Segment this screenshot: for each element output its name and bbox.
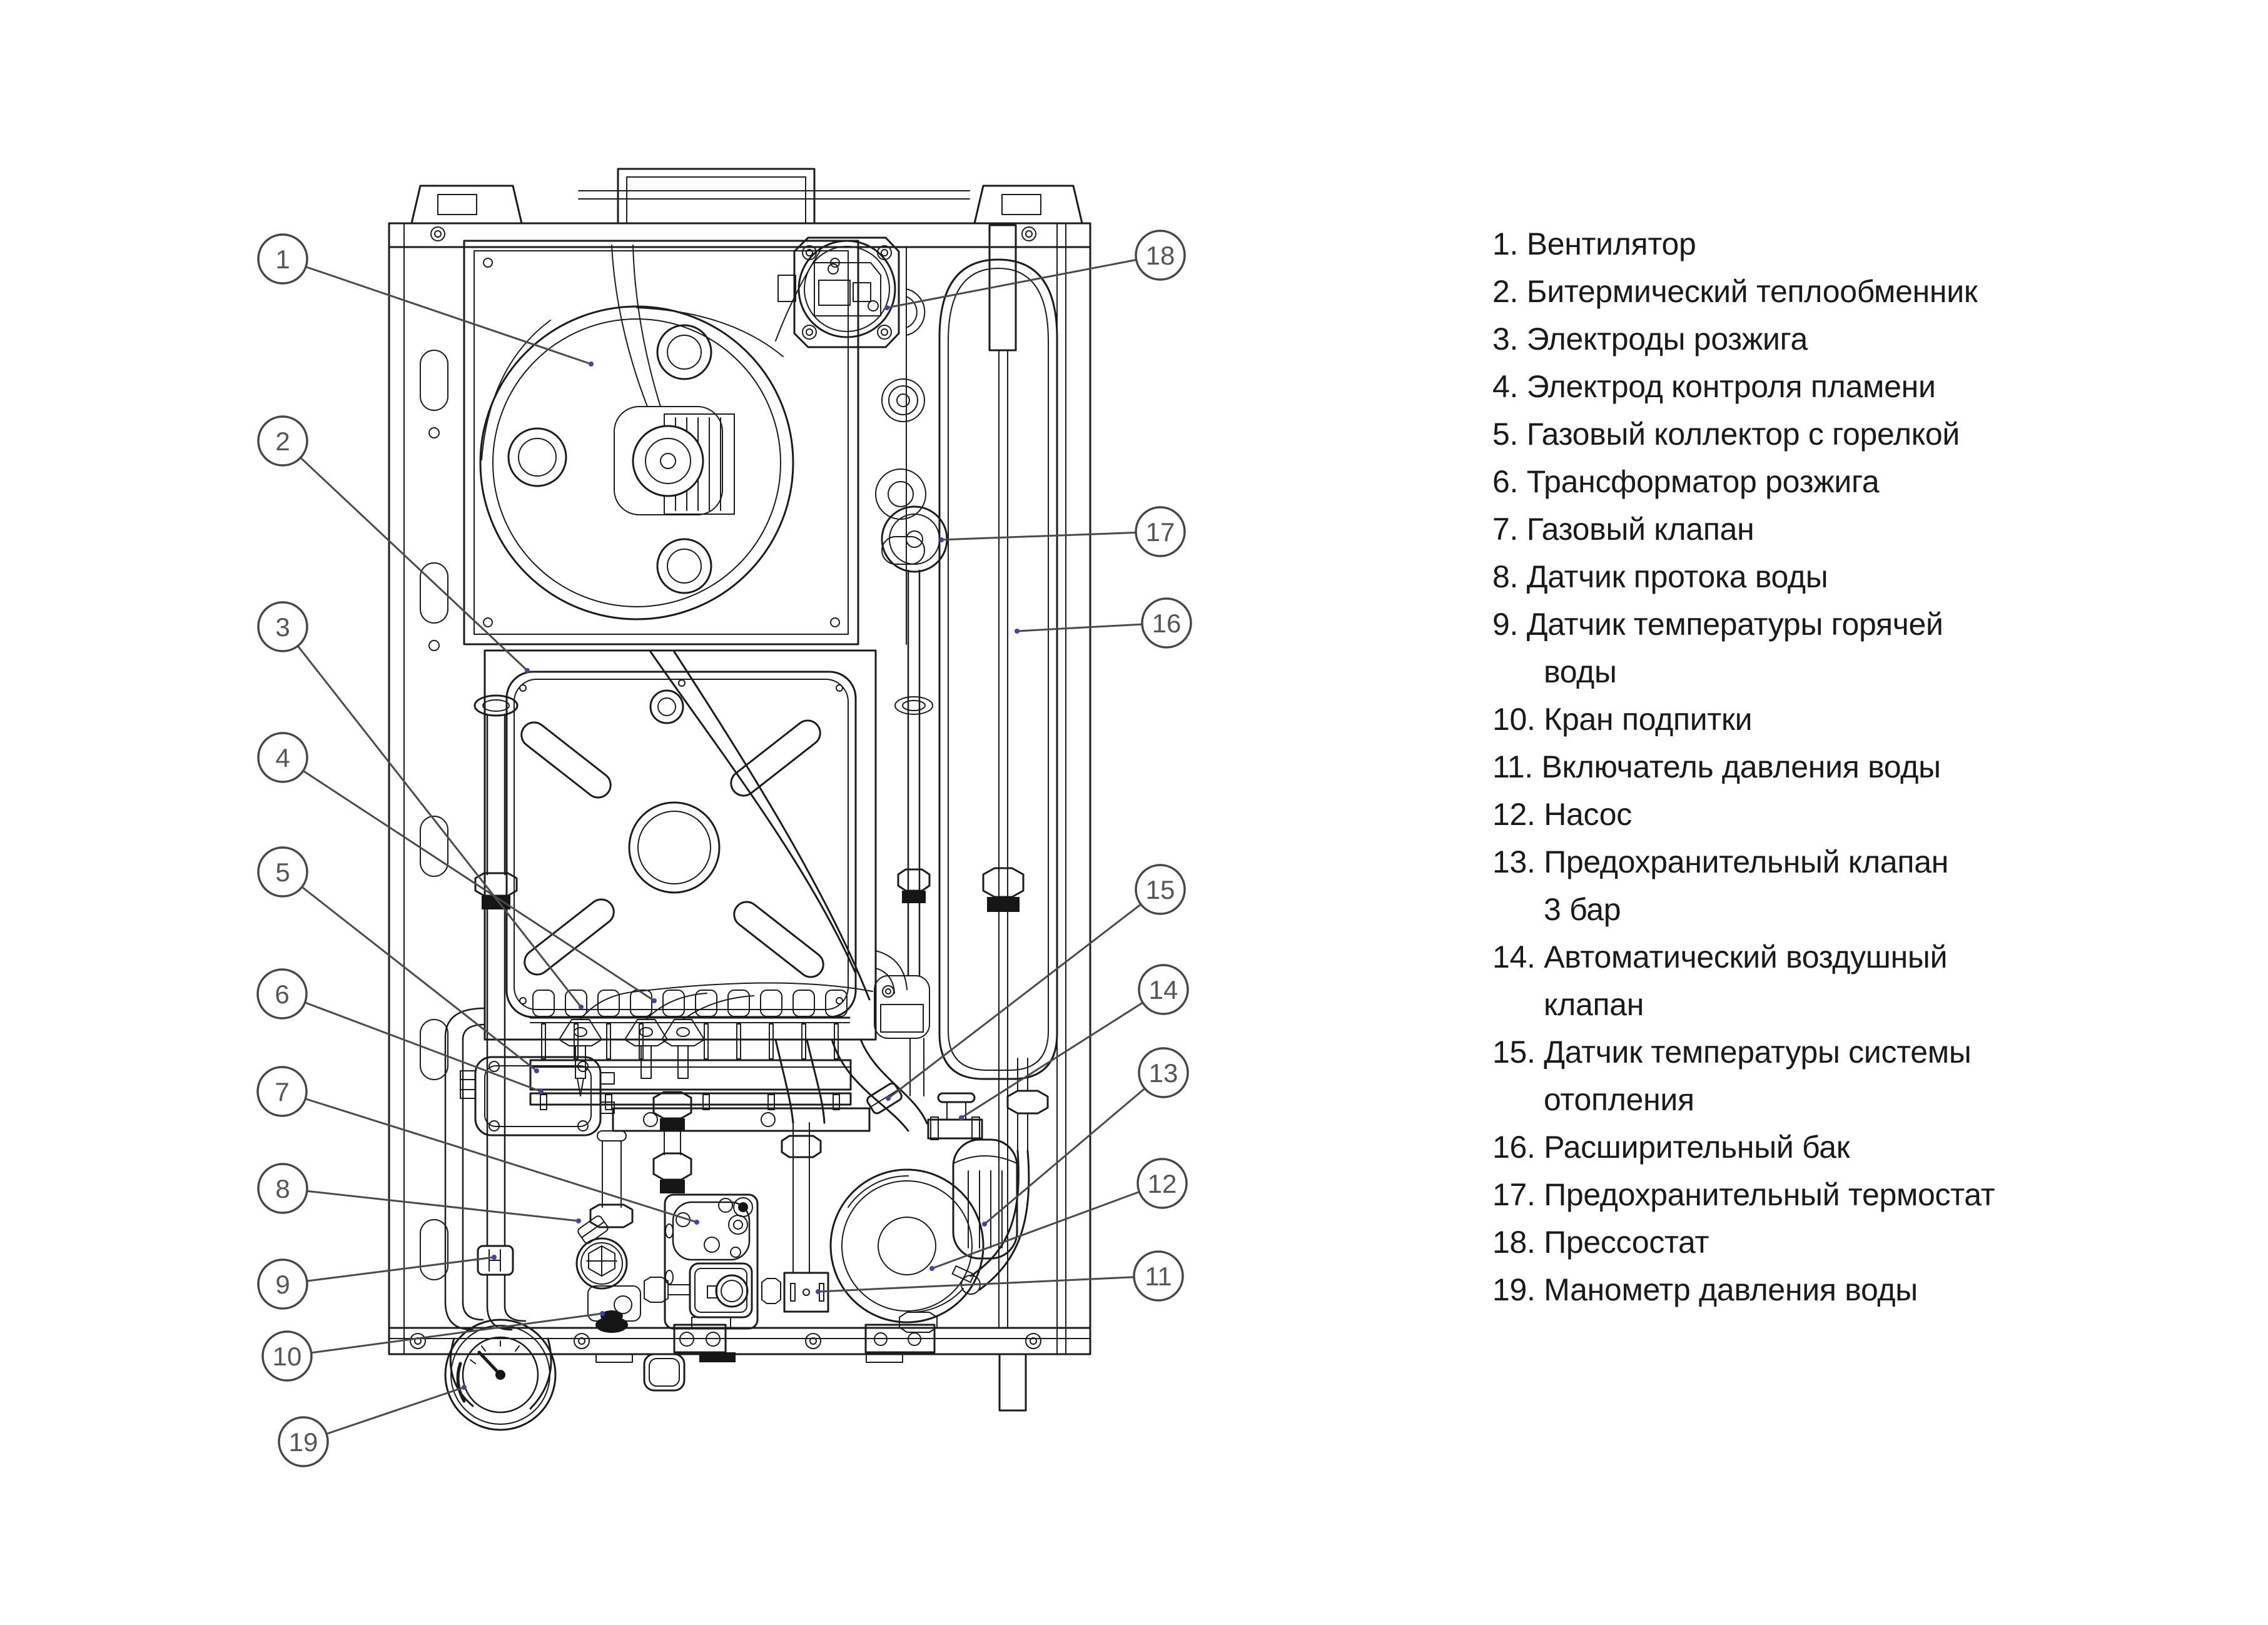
callout-10: 10 [263,1311,605,1380]
legend-item-11: 11. Включатель давления воды [1492,743,2243,791]
callout-number-7: 7 [275,1077,289,1106]
legend-item-18: 18. Прессостат [1492,1218,2243,1266]
callout-leader-18 [887,255,1160,308]
callout-number-19: 19 [289,1427,318,1457]
callout-16: 16 [1015,599,1191,647]
callout-4: 4 [258,733,657,1003]
callout-target-dot-13 [982,1222,987,1227]
callout-target-dot-18 [884,305,889,310]
callout-target-dot-10 [600,1311,605,1316]
callout-number-6: 6 [275,980,289,1009]
callout-number-13: 13 [1149,1058,1178,1088]
callout-number-18: 18 [1146,241,1175,270]
callout-number-8: 8 [275,1174,290,1203]
callout-target-dot-19 [462,1385,467,1390]
callout-9: 9 [258,1255,497,1309]
callout-target-dot-4 [652,998,657,1003]
callout-leader-7 [282,1091,697,1222]
legend-item-6: 6. Трансформатор розжига [1492,458,2243,505]
cabinet-frame [389,169,1090,1354]
legend-item-3: 3. Электроды розжига [1492,315,2243,363]
callout-number-1: 1 [275,245,290,274]
callout-target-dot-16 [1015,629,1020,634]
legend-item-2: 2. Битермический теплообменник [1492,268,2243,315]
water-pressure-switch [762,1123,828,1312]
callout-number-5: 5 [275,858,290,887]
callouts-layer: 12345678910191817161514131211 [258,231,1191,1466]
expansion-tank [939,225,1057,1410]
callout-number-9: 9 [275,1270,290,1299]
callout-number-16: 16 [1152,609,1182,638]
legend-item-8: 8. Датчик протока воды [1492,553,2243,600]
gas-valve [654,1092,757,1329]
callout-target-dot-15 [886,1096,891,1101]
callout-target-dot-3 [579,1005,584,1010]
legend-item-15: 15. Датчик температуры системы [1492,1028,2243,1076]
callout-leader-3 [283,627,581,1007]
callout-target-dot-2 [525,668,530,673]
callout-1: 1 [258,235,594,367]
callout-number-15: 15 [1146,875,1175,904]
pump [831,1093,1017,1332]
boiler-line-art [389,169,1090,1430]
bottom-rail [410,1325,1041,1362]
callout-number-3: 3 [275,612,290,642]
legend-item-14-cont: клапан [1492,981,2243,1028]
callout-leader-4 [283,757,654,1001]
callout-target-dot-12 [929,1266,934,1271]
callout-5: 5 [258,848,539,1073]
callout-target-dot-8 [576,1218,581,1223]
callout-3: 3 [258,602,584,1010]
legend-item-19: 19. Манометр давления воды [1492,1266,2243,1314]
legend-item-1: 1. Вентилятор [1492,220,2243,268]
legend-item-9-cont: воды [1492,648,2243,696]
callout-leader-17 [941,532,1160,540]
legend-item-9: 9. Датчик температуры горячей [1492,600,2243,648]
legend-item-13-cont: 3 бар [1492,886,2243,933]
heat-exchanger [485,651,907,1040]
legend-item-14: 14. Автоматический воздушный [1492,933,2243,981]
callout-19: 19 [279,1385,467,1466]
callout-14: 14 [959,965,1188,1120]
callout-leader-1 [283,259,591,364]
water-flow-sensor [577,1131,690,1390]
legend-item-13: 13. Предохранительный клапан [1492,838,2243,886]
dhw-temp-sensor [478,1246,513,1275]
callout-leader-12 [932,1183,1162,1268]
callout-leader-11 [818,1276,1158,1292]
callout-target-dot-9 [492,1255,497,1260]
callout-number-17: 17 [1146,517,1175,547]
legend-item-15-cont: отопления [1492,1076,2243,1123]
callout-number-11: 11 [1145,1262,1172,1291]
callout-number-10: 10 [273,1342,302,1371]
callout-number-14: 14 [1149,975,1178,1005]
air-pressure-switch [778,238,926,644]
burner-gas-collector [530,990,869,1131]
callout-number-12: 12 [1148,1169,1177,1198]
callout-8: 8 [258,1164,581,1223]
pressure-gauge [445,1320,555,1430]
legend-item-16: 16. Расширительный бак [1492,1123,2243,1171]
fan [464,241,858,644]
callout-target-dot-7 [694,1220,699,1225]
legend-item-17: 17. Предохранительный термостат [1492,1171,2243,1218]
safety-thermostat [874,507,947,1096]
callout-number-4: 4 [275,743,290,772]
legend-item-10: 10. Кран подпитки [1492,696,2243,743]
page: 12345678910191817161514131211 1. Вентиля… [0,0,2268,1625]
callout-leader-2 [283,441,527,671]
legend-item-5: 5. Газовый коллектор с горелкой [1492,410,2243,458]
callout-target-dot-6 [539,1089,544,1094]
callout-target-dot-5 [534,1068,539,1073]
legend-item-12: 12. Насос [1492,791,2243,838]
callout-7: 7 [258,1067,699,1225]
callout-leader-10 [287,1314,602,1356]
callout-number-2: 2 [275,427,290,456]
air-vent [938,1093,975,1120]
legend-list: 1. Вентилятор2. Битермический теплообмен… [1492,220,2243,1314]
callout-target-dot-1 [589,362,594,367]
callout-target-dot-17 [939,537,944,542]
callout-target-dot-14 [959,1115,964,1120]
legend-item-7: 7. Газовый клапан [1492,505,2243,553]
callout-leader-8 [283,1188,579,1221]
callout-17: 17 [939,507,1185,556]
callout-target-dot-11 [816,1289,821,1294]
legend-item-4: 4. Электрод контроля пламени [1492,363,2243,410]
